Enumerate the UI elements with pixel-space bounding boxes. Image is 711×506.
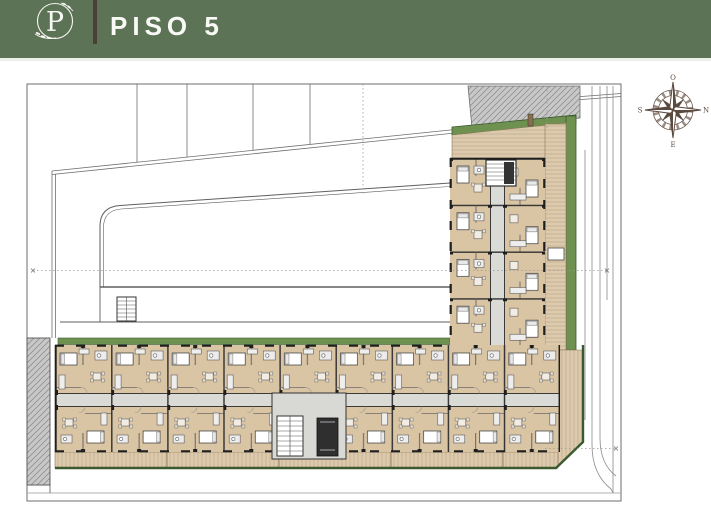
compass-label-south: S	[638, 107, 643, 115]
service-stair	[117, 297, 136, 321]
stair-core-main	[272, 393, 346, 459]
planter-green-right	[566, 116, 576, 350]
compass-label-east: E	[670, 141, 675, 149]
stair-core-right-wing	[486, 160, 516, 186]
page-title: PISO 5	[110, 11, 224, 42]
header-divider	[93, 0, 97, 44]
floor-plan: O N S E	[0, 0, 711, 506]
page: P PISO 5	[0, 0, 711, 506]
planter-green-bottom-wing	[58, 338, 450, 345]
header-bar: P PISO 5	[0, 0, 711, 61]
logo-monogram: P	[46, 7, 64, 38]
logo-graphic: P	[28, 0, 86, 58]
compass-label-north: N	[703, 107, 709, 115]
compass-label-west: O	[670, 74, 676, 82]
terrace-box	[548, 248, 564, 260]
planter-post	[528, 114, 533, 126]
party-wall-hatch	[27, 338, 50, 485]
compass-rose: O N S E	[638, 74, 709, 149]
brand-logo: P	[28, 0, 86, 58]
